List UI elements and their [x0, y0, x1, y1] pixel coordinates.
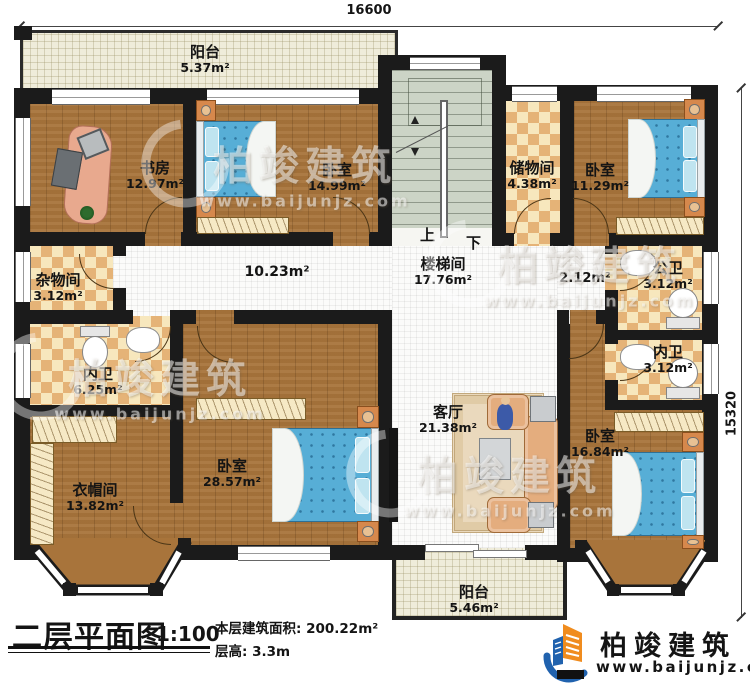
- page-title: 二层平面图: [12, 612, 167, 656]
- room-label-bedroom-bottomright: 卧室 16.84m²: [571, 428, 629, 460]
- room-label-utility: 杂物间 3.12m²: [33, 272, 82, 304]
- window: [15, 252, 31, 302]
- wall: [30, 232, 145, 246]
- toilet: [82, 336, 108, 368]
- wall: [505, 233, 514, 246]
- sink: [126, 327, 160, 353]
- side-table: [528, 502, 554, 528]
- room-label-bedroom-master: 卧室 28.57m²: [203, 458, 261, 490]
- side-table: [530, 396, 556, 422]
- wall: [170, 310, 196, 324]
- window: [238, 546, 330, 561]
- person-figure: [497, 404, 513, 430]
- coffee-table: [479, 438, 511, 480]
- stair-up-label: 上: [420, 224, 435, 245]
- bed-headboard: [371, 428, 379, 522]
- sofa: [524, 416, 558, 510]
- wall: [525, 545, 557, 560]
- brand-logo-icon: [538, 620, 596, 684]
- window: [410, 57, 480, 70]
- pillow: [205, 161, 219, 191]
- wall: [605, 330, 702, 340]
- room-label-balcony-top: 阳台 5.37m²: [180, 44, 229, 76]
- window: [703, 252, 719, 304]
- wall: [557, 310, 569, 324]
- armchair: [487, 497, 531, 533]
- wardrobe: [196, 398, 306, 420]
- dimension-line-top: [20, 26, 718, 27]
- dimension-right: 15320: [725, 388, 740, 440]
- bed-sheet: [246, 121, 276, 197]
- nightstand: [684, 99, 705, 120]
- nightstand: [684, 197, 705, 217]
- person-figure: [501, 396, 510, 405]
- wall: [605, 246, 618, 254]
- tv: [389, 428, 398, 522]
- room-label-public-bath: 公卫 3.12m²: [643, 260, 692, 292]
- nightstand: [357, 521, 379, 542]
- room-label-balcony-bottom: 阳台 5.46m²: [449, 584, 498, 616]
- bay-window-right: [575, 540, 717, 616]
- room-label-study: 书房 12.97m²: [126, 160, 184, 192]
- pillow: [355, 478, 370, 514]
- brand-url: www.baijunjz.com: [596, 658, 750, 676]
- window: [207, 89, 359, 105]
- wall: [14, 310, 133, 324]
- bed-headboard: [697, 119, 705, 198]
- wall: [170, 324, 183, 503]
- floor-height-info: 层高: 3.3m: [215, 640, 290, 660]
- room-label-living: 客厅 21.38m²: [419, 404, 477, 436]
- pillow: [681, 496, 695, 530]
- nightstand: [682, 432, 704, 452]
- title-underline: [8, 652, 210, 653]
- room-label-stairwell: 楼梯间 17.76m²: [414, 256, 472, 288]
- window: [703, 344, 719, 394]
- room-label-hall-small: 2.12m²: [559, 272, 610, 287]
- pillow: [681, 459, 695, 493]
- nightstand: [196, 197, 216, 218]
- window: [597, 86, 691, 102]
- stair-down-label: 下: [466, 232, 481, 253]
- nightstand: [357, 406, 379, 428]
- bay-window-left: [20, 538, 195, 616]
- window: [512, 86, 557, 102]
- wall: [113, 246, 126, 256]
- wall: [369, 232, 392, 246]
- floor-area-info: 本层建筑面积: 200.22m²: [215, 617, 378, 637]
- stair-arrow-down: [411, 148, 419, 156]
- wardrobe: [32, 416, 117, 443]
- room-label-inner-bath-left: 内卫 6.25m²: [73, 366, 122, 398]
- bed-headboard: [196, 121, 204, 197]
- wardrobe: [616, 217, 704, 235]
- pillow: [683, 126, 697, 158]
- stair-railing: [440, 100, 448, 238]
- room-label-inner-bath-right: 内卫 3.12m²: [643, 344, 692, 376]
- floor-plan-canvas: 16600 15320 上 下: [0, 0, 750, 695]
- wall: [378, 55, 392, 246]
- bed-headboard: [696, 452, 704, 536]
- wall: [234, 310, 392, 324]
- room-label-storage: 储物间 4.38m²: [507, 160, 556, 192]
- scale-label: 1:100: [156, 622, 220, 646]
- plant: [80, 206, 94, 220]
- sliding-door: [473, 550, 527, 558]
- dimension-line-right: [741, 88, 742, 618]
- pillow: [683, 160, 697, 192]
- room-label-bedroom-top: 卧室 14.99m²: [308, 162, 366, 194]
- sliding-door: [425, 544, 479, 552]
- window: [15, 344, 31, 398]
- nightstand: [196, 100, 216, 121]
- toilet-tank: [666, 317, 700, 329]
- balcony-post: [14, 26, 32, 40]
- wall: [183, 104, 196, 232]
- dimension-top: 16600: [330, 3, 408, 18]
- toilet-tank: [666, 387, 700, 399]
- wall: [392, 545, 425, 560]
- pillow: [355, 437, 370, 473]
- stair-arrow-up: [411, 116, 419, 124]
- room-label-bedroom-topright: 卧室 11.29m²: [571, 162, 629, 194]
- wardrobe: [197, 217, 289, 234]
- pillow: [205, 127, 219, 157]
- nightstand: [682, 535, 704, 549]
- window: [15, 118, 31, 206]
- wall: [605, 400, 702, 410]
- wall: [113, 288, 126, 312]
- window: [52, 89, 150, 105]
- title-underline: [8, 646, 210, 649]
- wall: [181, 232, 333, 246]
- room-label-cloakroom: 衣帽间 13.82m²: [66, 482, 124, 514]
- room-label-hallway: 10.23m²: [244, 264, 309, 280]
- wardrobe: [30, 443, 54, 545]
- toilet: [668, 288, 698, 318]
